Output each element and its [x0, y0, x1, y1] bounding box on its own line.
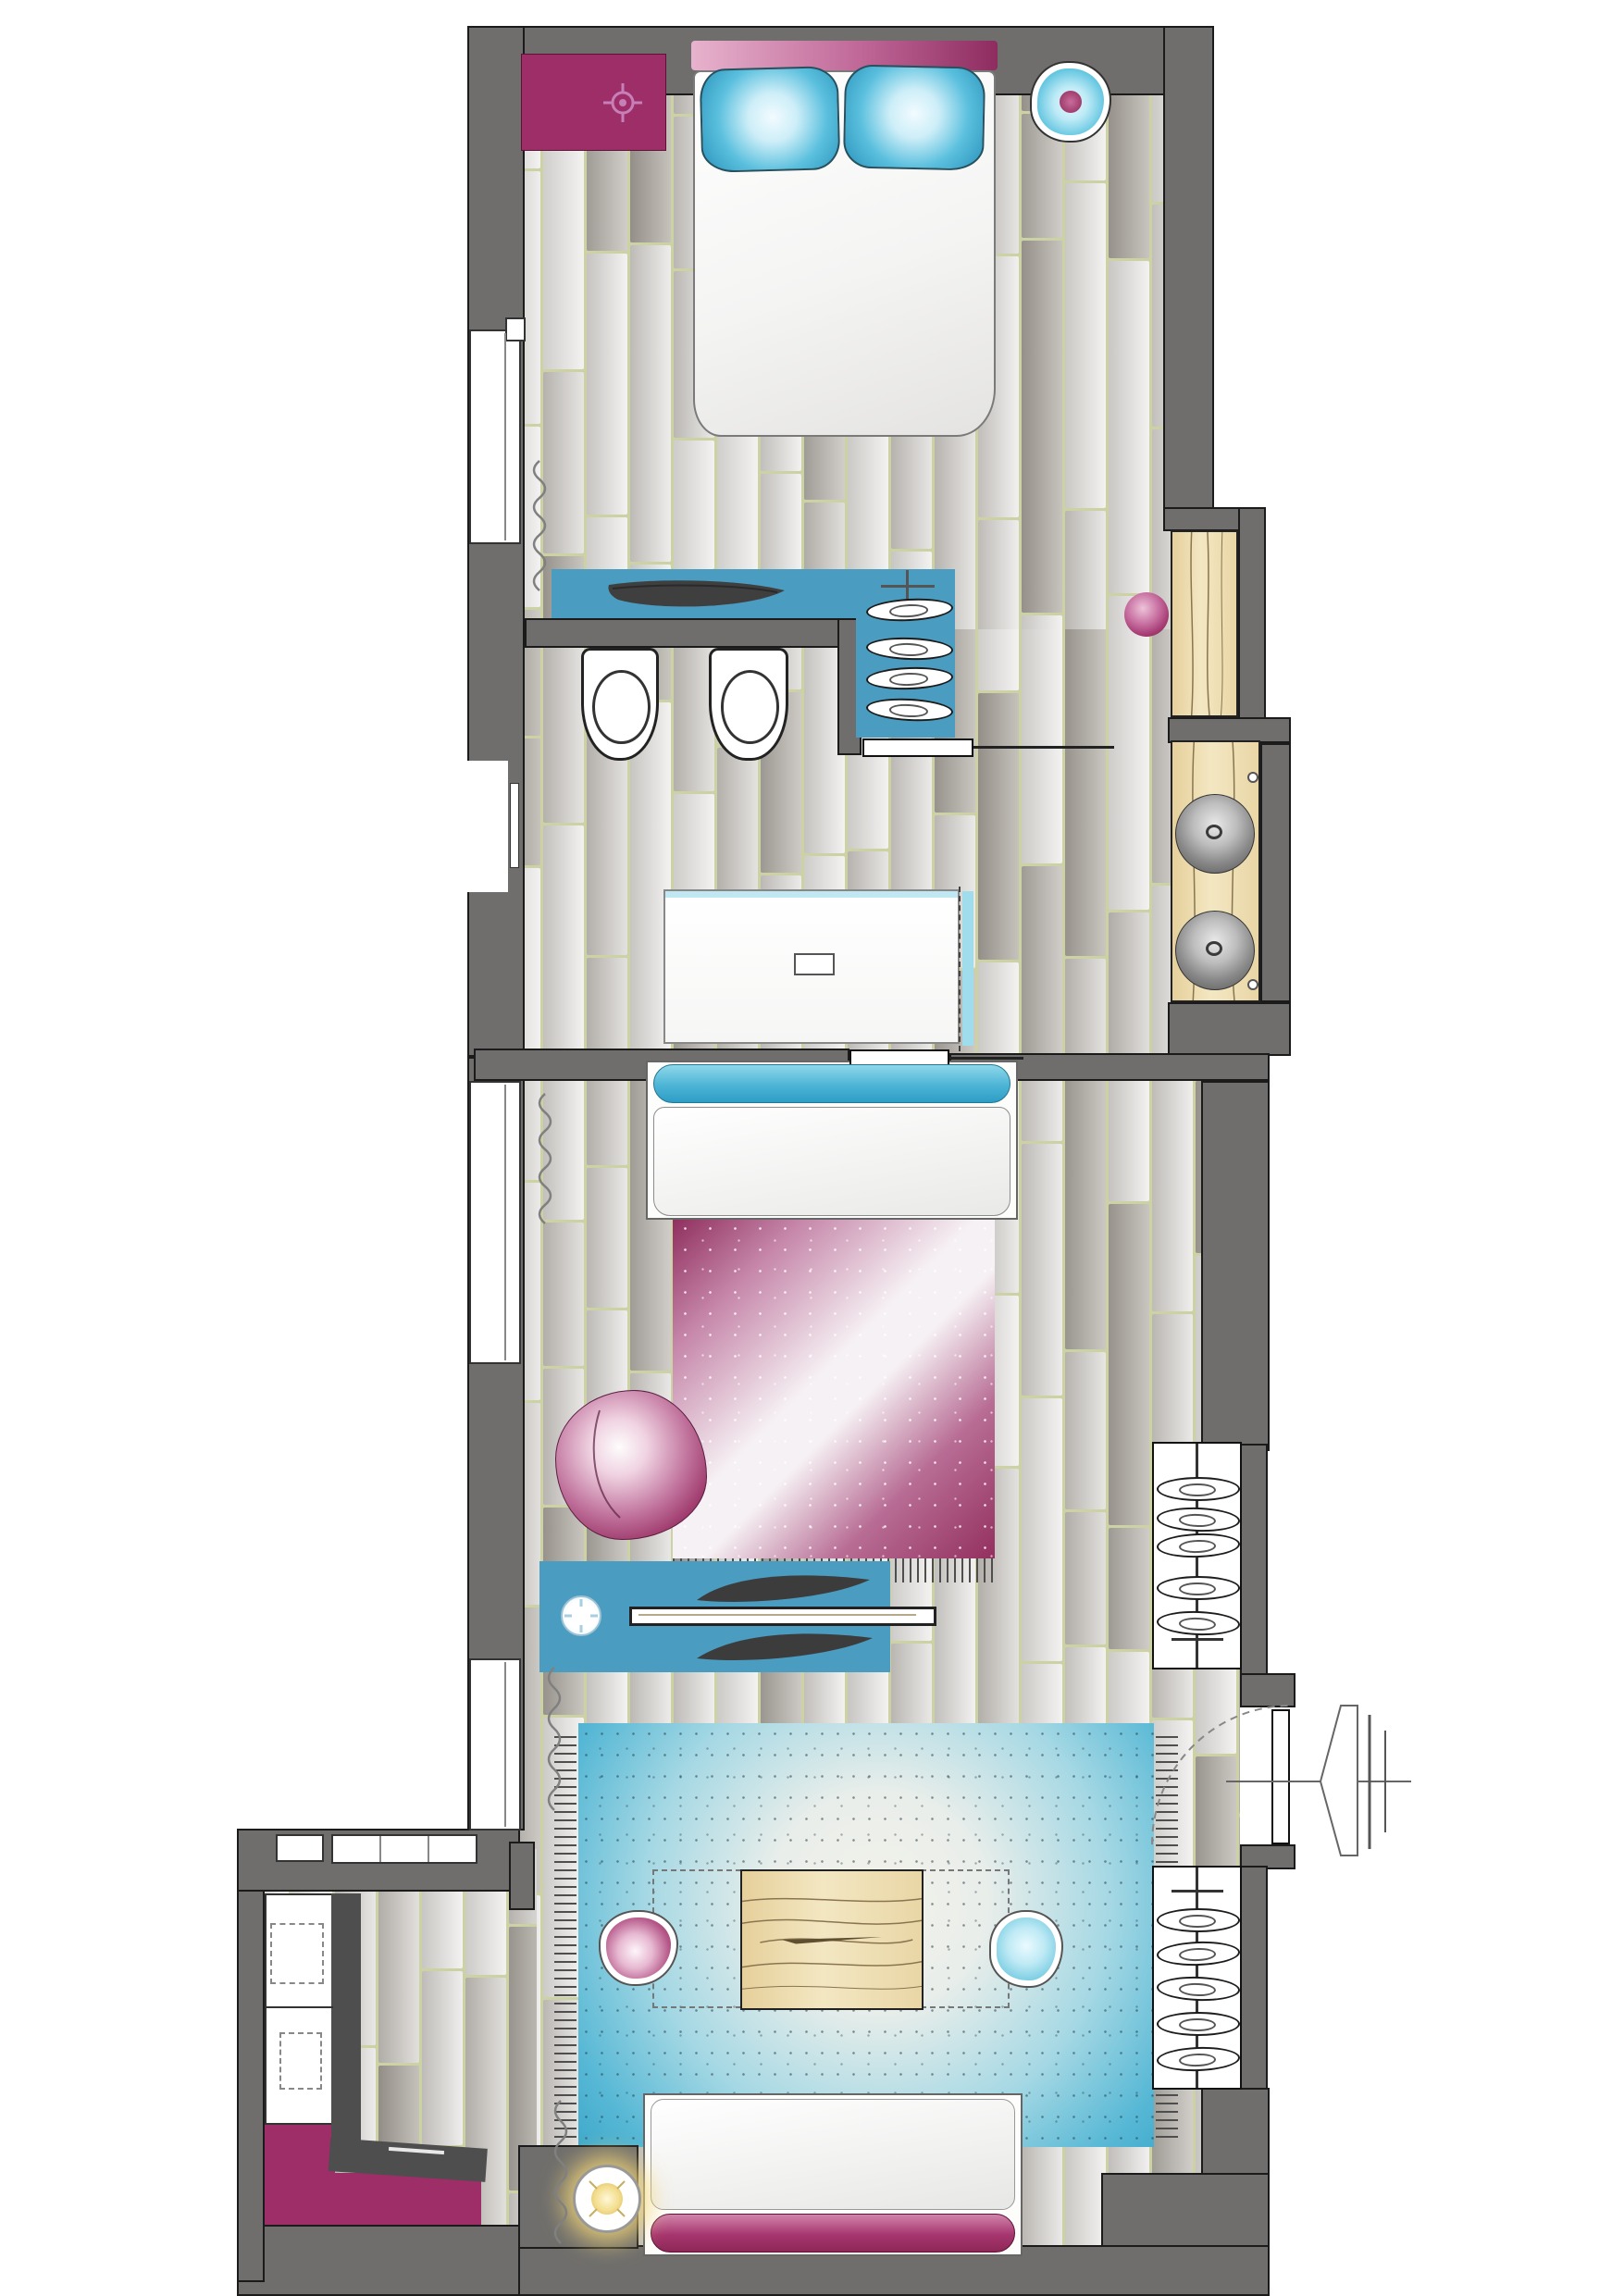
bed-pillow [700, 66, 841, 173]
wall-right-of-cabinet [1238, 507, 1266, 748]
floor-plank [978, 962, 1019, 1062]
floor-plank [1022, 866, 1062, 1062]
magenta-pouf-seam [555, 1390, 707, 1540]
floor-plank [587, 254, 627, 515]
floor-plank [1022, 1398, 1062, 1661]
floor-plank [1065, 1062, 1106, 1349]
leaf-slat-icon [1157, 1477, 1240, 1501]
curtain-squiggle-icon [548, 2099, 574, 2252]
floor-plank [1109, 1062, 1149, 1201]
floor-plank [543, 113, 584, 369]
leaf-slat-icon [1157, 1576, 1240, 1600]
floor-plank [674, 441, 714, 569]
floor-plank [543, 825, 584, 1062]
sliding-door-lower-track [949, 1057, 1023, 1060]
floor-plank [630, 245, 671, 562]
wood-cabinet [1171, 530, 1238, 717]
exterior-notch [467, 761, 508, 892]
floor-plank [1109, 1528, 1149, 1649]
floor-plank [587, 1168, 627, 1308]
entrance-arrow-icon [1221, 1695, 1420, 1867]
speaker [692, 1625, 877, 1662]
window-kitchen-divider2 [428, 1836, 429, 1862]
wall-right-of-niche [1260, 743, 1291, 1002]
leaf-slat-icon [1157, 2012, 1240, 2036]
floor-plank [978, 693, 1019, 960]
floor-plank [422, 1971, 463, 2145]
curtain-squiggle-icon [527, 459, 552, 600]
round-basin-drain [1206, 825, 1222, 839]
sofa-back-cushion [653, 1064, 1010, 1103]
window-kitchen-small [276, 1834, 324, 1862]
floor-plank [1065, 1352, 1106, 1508]
floor-plank [978, 520, 1019, 629]
magenta-rug-sparkles [673, 1218, 995, 1558]
bathroom-glass-slot [510, 783, 519, 868]
floor-plank [1065, 183, 1106, 508]
wall-below-niche [1168, 1002, 1291, 1056]
fan-cross-ticks [561, 1595, 601, 1636]
magenta-sphere-lamp [1124, 592, 1169, 637]
basin-faucet-dot [1247, 979, 1258, 990]
floor-plank [978, 629, 1019, 690]
sofa-seat [653, 1107, 1010, 1216]
leaf-slat-icon [1157, 1908, 1240, 1932]
window-living-lower [469, 1658, 521, 1831]
kitchen-magenta-floor [335, 2173, 481, 2225]
sliding-door-upper-track [973, 746, 1114, 749]
floor-plank [1109, 1204, 1149, 1525]
kitchen-counter-divider [265, 2006, 333, 2008]
window-kitchen-divider1 [379, 1836, 381, 1862]
sofa2-magenta-bolster [651, 2214, 1015, 2253]
wall-right-of-upper-panel [1240, 1444, 1268, 1677]
floor-plank [1022, 615, 1062, 629]
slat-panel-upper-crossbar [1172, 1638, 1223, 1641]
basin-faucet-dot [1247, 772, 1258, 783]
shower-glass-dashed [959, 887, 961, 1051]
drain-icon [794, 953, 835, 975]
window-bedroom-glassline [504, 333, 506, 540]
speaker [692, 1569, 877, 1606]
window-living-upper-glassline [504, 1085, 506, 1360]
wall-right-living [1201, 1081, 1270, 1451]
sliding-door-upper [862, 738, 973, 757]
floor-plank [587, 958, 627, 1062]
target-icon [600, 80, 646, 126]
shower-glass-teal [962, 891, 973, 1046]
coffee-table [740, 1869, 924, 2010]
floor-plank [543, 1222, 584, 1366]
window-living-lower-glassline [504, 1662, 506, 1827]
floor-plank [1022, 1144, 1062, 1395]
curtain-squiggle-icon [532, 1092, 558, 1233]
wall-bath-top [525, 618, 839, 648]
tv-screen [629, 1607, 936, 1626]
floor-plank [1065, 511, 1106, 629]
floor-plank [1109, 261, 1149, 593]
kitchen-dark-counter-vertical [331, 1893, 361, 2158]
wall-right-upper [1163, 26, 1214, 509]
wall-right-of-lower-panel [1240, 1866, 1268, 2091]
floor-plank [1152, 1062, 1193, 1311]
teal-pouf-small-top [997, 1917, 1056, 1980]
window-notch [505, 317, 526, 341]
floor-plank [1109, 912, 1149, 1062]
floor-plank [1065, 959, 1106, 1062]
floor-plank [1109, 629, 1149, 910]
wall-between-cabinet-niche [1168, 717, 1291, 743]
bed-pillow [843, 64, 986, 170]
round-basin-drain [1206, 941, 1222, 956]
floor-plank [1065, 1512, 1106, 1645]
sofa2-seat [651, 2099, 1015, 2210]
wall-step-bottom-right [1101, 2173, 1270, 2253]
kitchen-magenta-floor [265, 2123, 335, 2225]
toilet [581, 648, 659, 761]
kitchen-appliance-dashed [279, 2032, 322, 2090]
wall-kitchen-left [237, 1890, 265, 2282]
kitchen-appliance-dashed [270, 1923, 324, 1984]
vessel-sink [601, 576, 791, 614]
floor-plank [543, 629, 584, 823]
floor-plank [1022, 241, 1062, 613]
tv-screen-line [638, 1614, 916, 1616]
wall-kitchen-bottom [237, 2225, 520, 2296]
floor-plank [1065, 629, 1106, 956]
slat-panel-lower-crossbar [1172, 1890, 1223, 1893]
teal-pouf-center [1060, 91, 1082, 113]
faucet-cross-v [906, 570, 909, 602]
floor-plan-canvas [0, 0, 1624, 2296]
bidet [709, 648, 788, 761]
window-kitchen-wide [331, 1834, 477, 1864]
curtain-squiggle-icon [541, 1666, 567, 1818]
toilet-bowl [592, 670, 650, 744]
lamp-ticks [573, 2165, 641, 2233]
bidet-bowl [721, 670, 780, 744]
wall-kitchen-right-stub [509, 1842, 535, 1910]
window-bedroom [469, 329, 521, 544]
window-living-upper [469, 1081, 521, 1364]
